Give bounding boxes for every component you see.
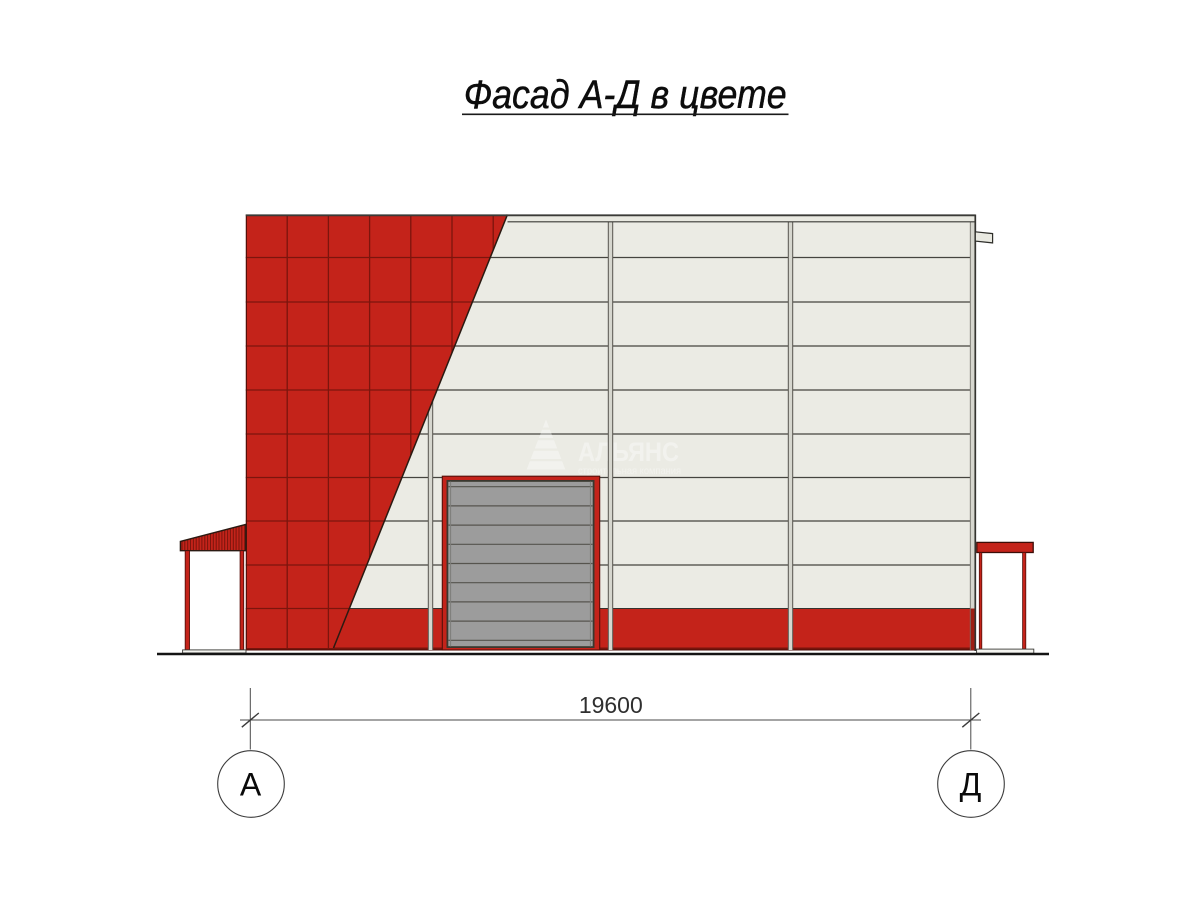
svg-text:строительная компания: строительная компания (578, 466, 681, 477)
svg-text:Фасад А-Д в цвете: Фасад А-Д в цвете (464, 73, 787, 117)
svg-text:19600: 19600 (579, 692, 643, 718)
svg-text:АЛЬЯНС: АЛЬЯНС (578, 437, 679, 467)
svg-text:Д: Д (960, 767, 982, 803)
svg-text:А: А (240, 767, 262, 803)
